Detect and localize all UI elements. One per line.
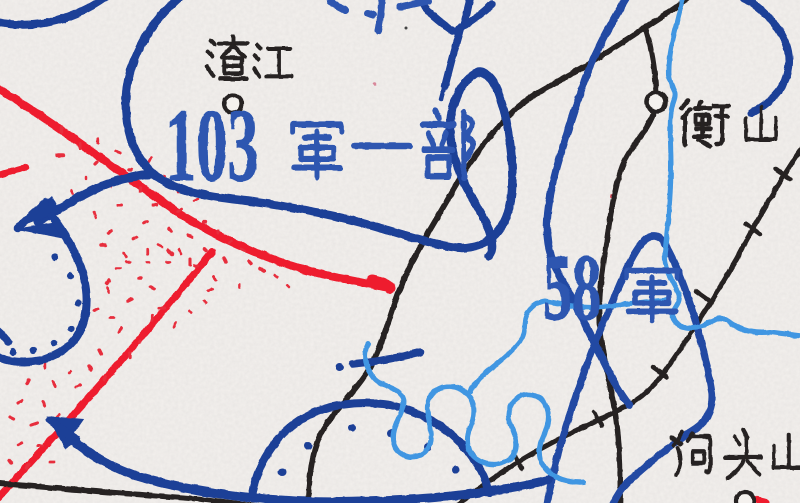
svg-text:58: 58 <box>543 235 601 340</box>
svg-text:103: 103 <box>165 88 259 203</box>
